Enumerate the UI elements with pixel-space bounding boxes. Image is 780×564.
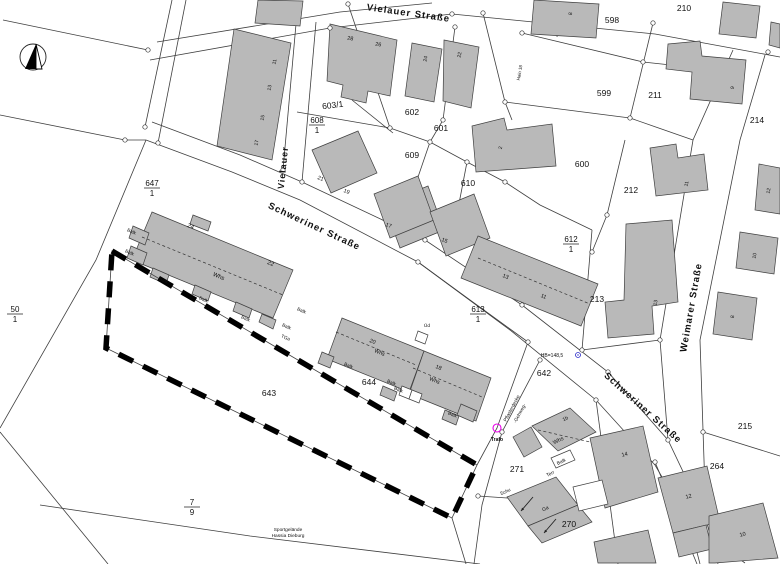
parcel-fraction-denominator: 1 <box>476 315 481 324</box>
survey-point-icon <box>388 126 392 130</box>
parcel-label: 270 <box>562 519 576 529</box>
survey-point-icon <box>766 50 770 54</box>
benchmark-symbol-dot-icon <box>577 354 578 355</box>
survey-point-icon <box>503 100 507 104</box>
parcel-fraction-numerator: 50 <box>11 305 20 314</box>
sports-ground-label: Hassia Dieburg <box>272 533 305 539</box>
survey-point-icon <box>300 180 304 184</box>
parcel-label: 602 <box>405 107 419 117</box>
parcel-label: 271 <box>510 464 524 474</box>
parcel-label: 215 <box>738 421 752 431</box>
parcel-label: 264 <box>710 461 724 471</box>
parcel-label: 609 <box>405 150 419 160</box>
building <box>736 232 778 274</box>
survey-point-icon <box>701 430 705 434</box>
parcel-label: 599 <box>597 88 611 98</box>
survey-point-icon <box>346 2 350 6</box>
parcel-fraction-numerator: 608 <box>310 116 324 125</box>
parcel-label: 643 <box>262 388 276 398</box>
trafo-label: Trafo <box>491 437 503 443</box>
parcel-label: 644 <box>362 377 376 387</box>
building <box>719 2 760 38</box>
survey-point-icon <box>590 250 594 254</box>
survey-point-icon <box>653 460 657 464</box>
parcel-fraction-numerator: 7 <box>190 498 195 507</box>
parcel-label: 598 <box>605 15 619 25</box>
building <box>769 22 780 48</box>
building-label: 28 <box>347 36 354 43</box>
survey-point-icon <box>641 60 645 64</box>
building <box>531 0 599 38</box>
parcel-fraction-numerator: 612 <box>564 235 578 244</box>
survey-point-icon <box>520 31 524 35</box>
building-label: 26 <box>375 42 382 49</box>
parcel-fraction-denominator: 1 <box>13 315 18 324</box>
parcel-label: 210 <box>677 3 691 13</box>
survey-point-icon <box>503 180 507 184</box>
survey-point-icon <box>453 25 457 29</box>
sports-ground-label: Sportgelände <box>274 527 303 533</box>
survey-point-icon <box>651 21 655 25</box>
survey-point-icon <box>146 48 150 52</box>
cadastral-map: Vielauer StraßeVielauerSchweriner Straße… <box>0 0 780 564</box>
survey-point-icon <box>520 303 524 307</box>
survey-point-icon <box>580 348 584 352</box>
parcel-label: 610 <box>461 178 475 188</box>
parcel-label: 642 <box>537 368 551 378</box>
survey-point-icon <box>428 140 432 144</box>
survey-point-icon <box>658 338 662 342</box>
survey-point-icon <box>123 138 127 142</box>
survey-point-icon <box>476 494 480 498</box>
survey-point-icon <box>526 340 530 344</box>
survey-point-icon <box>328 26 332 30</box>
parcel-fraction-denominator: 1 <box>569 245 574 254</box>
survey-point-icon <box>423 238 427 242</box>
parcel-label: 213 <box>590 294 604 304</box>
parcel-label: 212 <box>624 185 638 195</box>
benchmark-label: HB=148,5 <box>541 353 564 359</box>
survey-point-icon <box>628 116 632 120</box>
parcel-fraction-numerator: 613 <box>471 305 485 314</box>
parcel-fraction-denominator: 9 <box>190 508 195 517</box>
survey-point-icon <box>143 125 147 129</box>
map-svg: Vielauer StraßeVielauerSchweriner Straße… <box>0 0 780 564</box>
parcel-fraction-numerator: 647 <box>145 179 159 188</box>
survey-point-icon <box>156 141 160 145</box>
parcel-fraction-denominator: 1 <box>150 189 155 198</box>
annotation-label: Üd <box>424 322 430 329</box>
parcel-label: 211 <box>648 90 662 100</box>
survey-point-icon <box>594 398 598 402</box>
parcel-label: 600 <box>575 159 589 169</box>
survey-point-icon <box>465 160 469 164</box>
survey-point-icon <box>481 11 485 15</box>
survey-point-icon <box>441 118 445 122</box>
parcel-label: 601 <box>434 123 448 133</box>
survey-point-icon <box>605 213 609 217</box>
survey-point-icon <box>416 260 420 264</box>
parcel-fraction-denominator: 1 <box>315 126 320 135</box>
parcel-label: 214 <box>750 115 764 125</box>
building <box>255 0 303 26</box>
